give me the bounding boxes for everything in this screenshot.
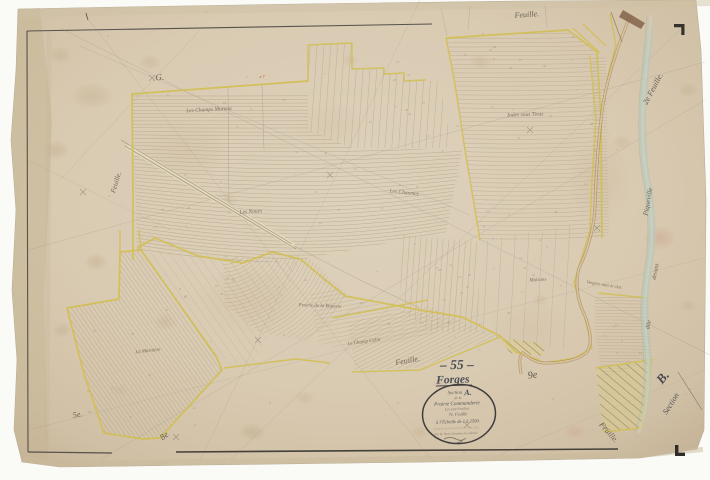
svg-text:28: 28 xyxy=(324,151,328,155)
svg-text:31: 31 xyxy=(519,256,523,260)
svg-text:28: 28 xyxy=(393,78,397,82)
svg-text:45: 45 xyxy=(187,206,191,210)
svg-text:12: 12 xyxy=(87,389,91,393)
svg-text:15: 15 xyxy=(460,291,464,295)
svg-text:31: 31 xyxy=(148,373,152,377)
svg-text:31: 31 xyxy=(486,209,490,213)
svg-text:12: 12 xyxy=(193,406,197,410)
svg-text:12: 12 xyxy=(479,322,483,326)
svg-text:A.: A. xyxy=(463,388,472,397)
svg-text:45: 45 xyxy=(165,308,169,312)
svg-text:28: 28 xyxy=(438,268,442,272)
svg-text:45: 45 xyxy=(468,273,472,277)
svg-text:31: 31 xyxy=(441,149,445,153)
svg-text:31: 31 xyxy=(380,206,384,210)
svg-text:45: 45 xyxy=(532,273,536,277)
svg-text:– 55 –: – 55 – xyxy=(439,357,474,373)
svg-text:28: 28 xyxy=(507,311,511,315)
svg-text:28: 28 xyxy=(405,108,409,112)
svg-text:15: 15 xyxy=(315,190,319,194)
svg-text:28: 28 xyxy=(543,64,547,68)
svg-text:12: 12 xyxy=(319,221,323,225)
svg-text:31: 31 xyxy=(369,120,373,124)
svg-text:28: 28 xyxy=(387,322,391,326)
svg-text:G.: G. xyxy=(155,72,165,83)
svg-text:15: 15 xyxy=(491,105,495,109)
svg-text:15: 15 xyxy=(464,53,468,57)
svg-text:15: 15 xyxy=(184,173,188,177)
svg-text:15: 15 xyxy=(154,225,158,229)
svg-text:5e.: 5e. xyxy=(72,409,83,420)
svg-text:12: 12 xyxy=(304,278,308,282)
svg-text:x 7: x 7 xyxy=(258,74,265,79)
svg-text:64: 64 xyxy=(88,410,92,414)
svg-text:28: 28 xyxy=(161,208,165,212)
svg-text:15: 15 xyxy=(422,101,426,105)
svg-text:12: 12 xyxy=(443,298,447,302)
svg-text:28: 28 xyxy=(447,321,451,325)
svg-text:64: 64 xyxy=(226,276,230,280)
svg-text:31: 31 xyxy=(509,66,513,70)
svg-text:31: 31 xyxy=(215,284,219,288)
svg-text:28: 28 xyxy=(131,332,135,336)
svg-text:31: 31 xyxy=(482,225,486,229)
svg-text:31: 31 xyxy=(396,60,400,64)
svg-text:64: 64 xyxy=(232,278,236,282)
svg-text:12: 12 xyxy=(354,167,358,171)
svg-text:64: 64 xyxy=(408,112,412,116)
svg-text:31: 31 xyxy=(295,150,299,154)
svg-text:15: 15 xyxy=(236,125,240,129)
svg-text:28: 28 xyxy=(590,122,594,126)
svg-text:Feuille.: Feuille. xyxy=(513,9,539,20)
svg-text:45: 45 xyxy=(549,114,553,118)
svg-text:28: 28 xyxy=(220,292,224,296)
svg-text:45: 45 xyxy=(466,285,470,289)
svg-text:64: 64 xyxy=(639,351,643,355)
svg-text:15: 15 xyxy=(539,238,543,242)
svg-text:15: 15 xyxy=(519,58,523,62)
svg-text:12: 12 xyxy=(184,295,188,299)
svg-text:de la: de la xyxy=(455,396,462,400)
svg-text:12: 12 xyxy=(584,182,588,186)
svg-text:28: 28 xyxy=(554,210,558,214)
svg-text:Mulsans: Mulsans xyxy=(528,278,546,284)
svg-text:12: 12 xyxy=(449,263,453,267)
svg-text:15: 15 xyxy=(337,208,341,212)
svg-text:12: 12 xyxy=(615,323,619,327)
svg-text:31: 31 xyxy=(93,329,97,333)
svg-text:12: 12 xyxy=(458,275,462,279)
svg-text:64: 64 xyxy=(360,301,364,305)
svg-text:28: 28 xyxy=(493,45,497,49)
svg-text:64: 64 xyxy=(223,101,227,105)
svg-text:12: 12 xyxy=(426,134,430,138)
svg-text:31: 31 xyxy=(523,266,527,270)
svg-text:15: 15 xyxy=(129,415,133,419)
svg-text:64: 64 xyxy=(489,48,493,52)
svg-text:31: 31 xyxy=(407,73,411,77)
svg-text:7e. Feuille: 7e. Feuille xyxy=(448,411,467,417)
svg-text:15: 15 xyxy=(456,124,460,128)
svg-text:15: 15 xyxy=(283,98,287,102)
